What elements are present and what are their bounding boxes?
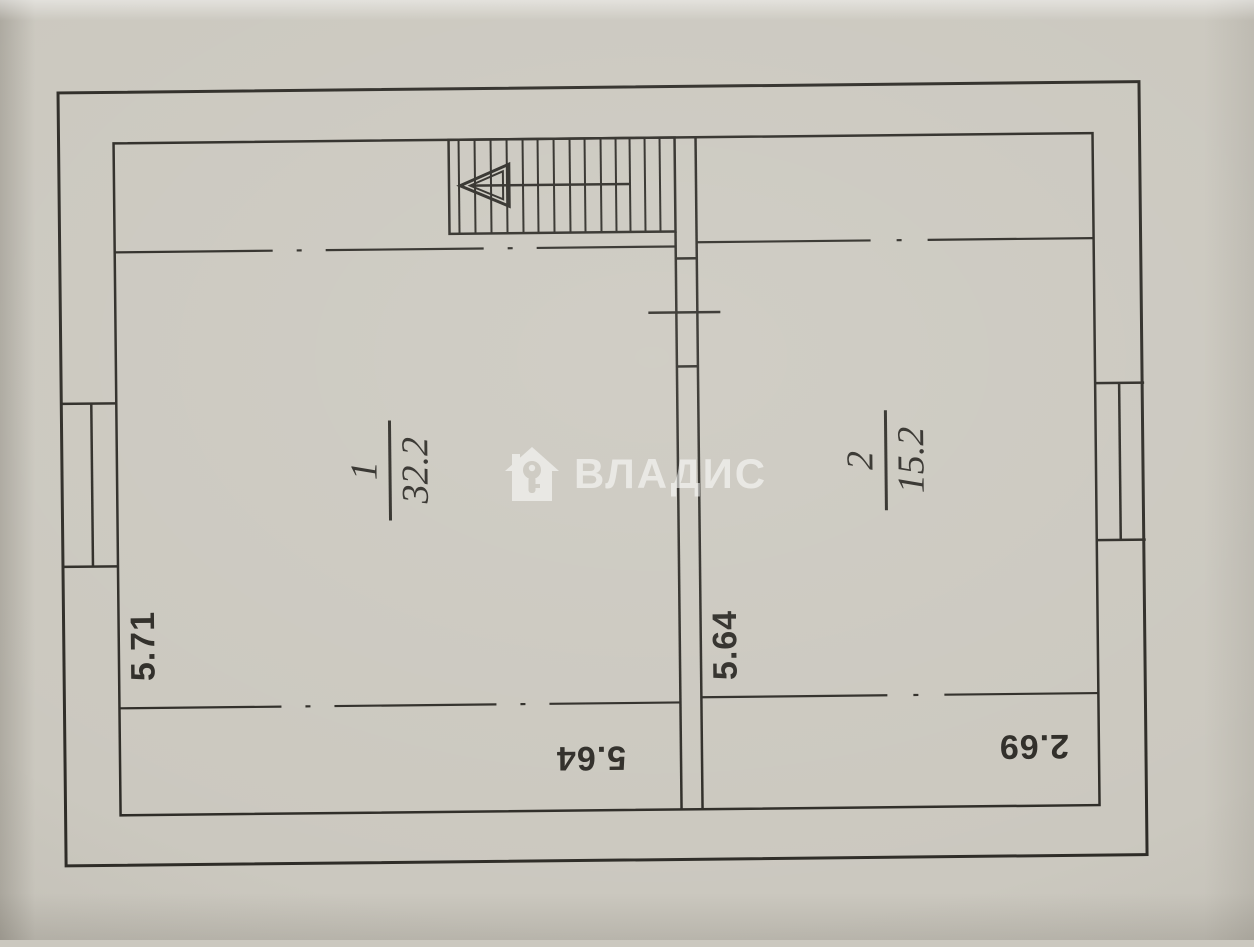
attic-line-lower-left [119,702,680,708]
window-left [61,403,118,567]
room-1-number: 1 [345,461,383,480]
attic-line-lower-right [701,693,1098,697]
partition-wall [647,137,726,810]
attic-line-upper-right [697,238,1094,242]
room-2-number: 2 [841,451,879,470]
dimension-left-wall: 5.71 [124,611,164,682]
stair-direction-arrow-icon [460,163,630,207]
floor-plan-photo: 1 32.2 2 15.2 5.71 5.64 5.64 2.69 ВЛАДИС [0,0,1254,940]
room-1-area: 32.2 [396,437,435,504]
dimension-partition: 5.64 [706,610,746,681]
dimension-bottom-room1: 5.64 [556,738,627,778]
inner-wall [114,133,1100,815]
room-2-label: 2 15.2 [841,410,931,511]
floor-plan-drawing [0,0,1254,947]
floor-plan: 1 32.2 2 15.2 5.71 5.64 5.64 2.69 [0,0,1254,947]
room-2-area: 15.2 [892,427,931,494]
dimension-bottom-room2: 2.69 [999,726,1070,766]
window-right [1095,383,1146,541]
attic-line-upper-left [115,246,676,252]
fraction-bar [388,420,392,520]
fraction-bar [884,410,888,510]
room-1-label: 1 32.2 [345,420,435,521]
partition-cross-tick [648,312,720,313]
staircase [449,137,676,233]
